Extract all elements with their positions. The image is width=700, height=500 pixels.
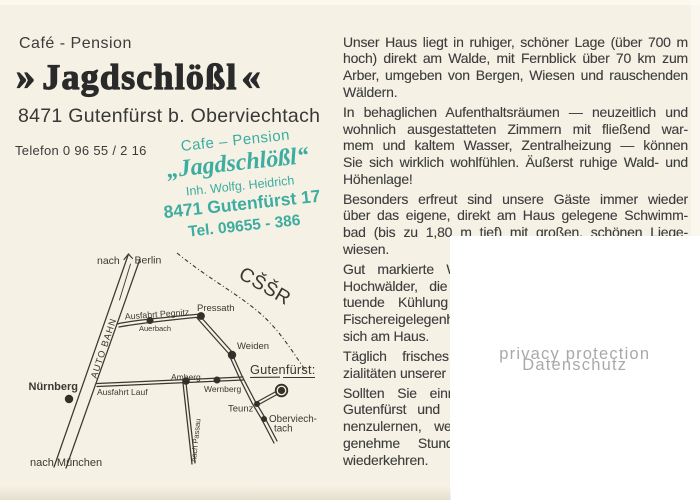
svg-text:nach München: nach München [30,457,102,469]
svg-text:Berlin: Berlin [135,255,162,267]
svg-text:Wernberg: Wernberg [204,384,241,394]
svg-text:tach: tach [274,424,293,435]
svg-text:Gutenfürst:: Gutenfürst: [250,362,316,377]
svg-text:nach: nach [97,255,120,267]
svg-text:Weiden: Weiden [237,341,269,352]
svg-text:CŠŠR: CŠŠR [235,262,295,310]
svg-text:Amberg: Amberg [171,372,201,382]
svg-text:Auerbach: Auerbach [139,324,171,333]
svg-text:Nürnberg: Nürnberg [29,381,79,393]
svg-text:Ausfahrt Lauf: Ausfahrt Lauf [97,387,148,397]
svg-text:Pressath: Pressath [197,303,235,314]
svg-text:Teunz: Teunz [228,404,254,415]
